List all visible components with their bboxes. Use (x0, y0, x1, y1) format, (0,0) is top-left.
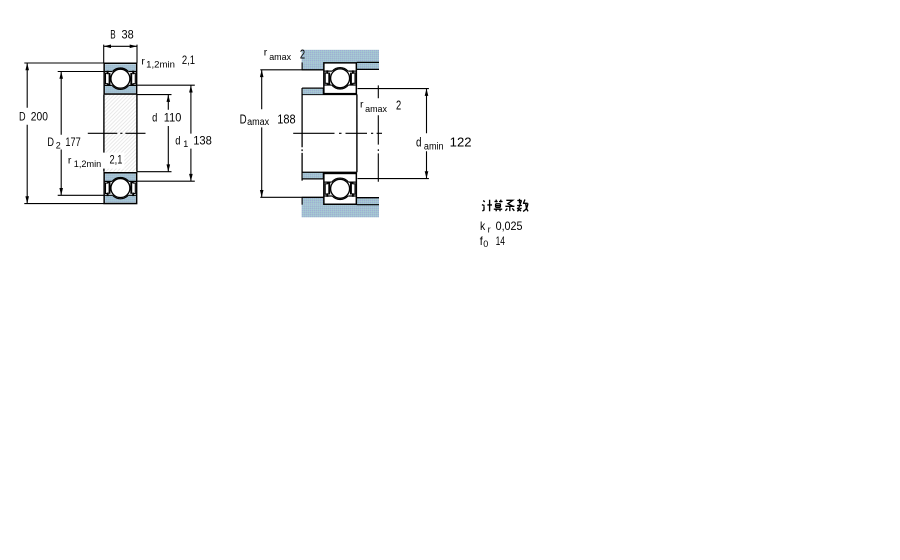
svg-text:r: r (360, 98, 364, 110)
svg-text:r: r (488, 224, 491, 234)
svg-text:177: 177 (65, 135, 80, 149)
svg-text:d: d (175, 134, 180, 148)
svg-text:14: 14 (496, 234, 506, 248)
svg-text:r: r (264, 47, 268, 59)
svg-text:0: 0 (483, 239, 488, 249)
svg-text:2,1: 2,1 (182, 53, 195, 67)
svg-text:138: 138 (193, 134, 212, 148)
svg-text:amax: amax (247, 117, 269, 128)
svg-text:110: 110 (164, 111, 182, 125)
svg-text:1,2min: 1,2min (74, 159, 101, 169)
svg-text:amax: amax (365, 104, 387, 115)
svg-text:amax: amax (269, 52, 291, 63)
svg-text:122: 122 (450, 136, 472, 150)
svg-text:2: 2 (300, 47, 305, 62)
svg-text:0,025: 0,025 (496, 219, 523, 233)
svg-text:d: d (152, 111, 157, 125)
svg-text:amin: amin (424, 142, 444, 153)
svg-text:2: 2 (56, 141, 61, 151)
svg-text:188: 188 (277, 111, 295, 126)
svg-text:d: d (416, 136, 422, 150)
svg-text:r: r (68, 155, 72, 167)
svg-text:1,2min: 1,2min (146, 60, 175, 70)
svg-text:D: D (47, 135, 54, 149)
svg-text:1: 1 (183, 139, 188, 149)
svg-text:D: D (240, 111, 247, 126)
svg-text:2,1: 2,1 (110, 153, 123, 167)
svg-text:200: 200 (31, 110, 48, 124)
svg-text:k: k (480, 219, 485, 233)
svg-text:D: D (19, 110, 26, 124)
svg-text:B: B (110, 27, 115, 41)
svg-text:2: 2 (396, 98, 401, 112)
svg-text:38: 38 (122, 27, 135, 41)
svg-text:r: r (141, 55, 145, 67)
